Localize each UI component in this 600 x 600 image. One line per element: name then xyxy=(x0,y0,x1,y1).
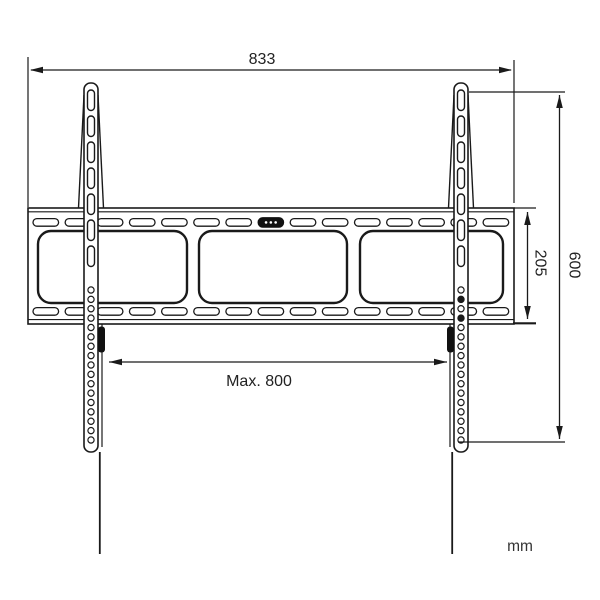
mounting-slot xyxy=(129,219,155,227)
round-hole xyxy=(88,390,94,396)
units-label-group: mm xyxy=(507,538,533,555)
locking-clip xyxy=(447,327,454,353)
mounting-slot xyxy=(290,308,316,316)
mounting-slot xyxy=(322,219,348,227)
vesa-slot xyxy=(88,142,95,163)
arrowhead-left-icon xyxy=(30,67,43,74)
vesa-slot xyxy=(88,116,95,137)
round-hole xyxy=(458,428,464,434)
round-hole xyxy=(458,334,464,340)
bracket-technical-drawing: 833 600 205 Max. 800 mm xyxy=(0,0,600,600)
round-hole xyxy=(88,353,94,359)
round-hole xyxy=(88,287,94,293)
mounting-slot xyxy=(162,308,188,316)
level-indicator-dot xyxy=(274,221,277,224)
plate-cutout xyxy=(360,231,503,303)
mounting-slot xyxy=(97,219,123,227)
vesa-slot xyxy=(458,116,465,137)
arrowhead-up-icon xyxy=(524,212,531,225)
dim-overall-height-label: 600 xyxy=(566,252,583,279)
round-hole xyxy=(458,315,464,321)
round-hole xyxy=(88,334,94,340)
arrowhead-right-icon xyxy=(434,359,447,366)
gusset-edge xyxy=(468,95,474,208)
arrowhead-down-icon xyxy=(524,306,531,319)
mounting-slot xyxy=(419,219,445,227)
round-hole xyxy=(458,399,464,405)
vesa-slot xyxy=(458,142,465,163)
arrowhead-right-icon xyxy=(499,67,512,74)
round-hole xyxy=(458,324,464,330)
mounting-slot xyxy=(387,219,413,227)
mounting-slot xyxy=(290,219,316,227)
vesa-slot xyxy=(88,90,95,111)
dim-plate-height: 205 xyxy=(513,208,549,323)
round-hole xyxy=(458,287,464,293)
mounting-slot xyxy=(355,308,381,316)
round-hole xyxy=(88,437,94,443)
mounting-slot xyxy=(483,219,509,227)
dim-plate-height-label: 205 xyxy=(532,250,549,277)
vesa-slot xyxy=(458,168,465,189)
vesa-slot xyxy=(458,194,465,215)
vesa-slot xyxy=(458,220,465,241)
wall-plate xyxy=(28,208,514,324)
mounting-slot xyxy=(226,308,252,316)
vesa-slot xyxy=(88,220,95,241)
vesa-slot xyxy=(88,194,95,215)
round-hole xyxy=(88,306,94,312)
gusset-edge xyxy=(79,95,85,208)
round-hole xyxy=(88,428,94,434)
units-label: mm xyxy=(507,538,533,555)
round-hole xyxy=(458,371,464,377)
round-hole xyxy=(88,381,94,387)
gusset-edge xyxy=(449,95,455,208)
arrowhead-up-icon xyxy=(556,95,563,108)
mounting-slot xyxy=(194,308,220,316)
round-hole xyxy=(458,362,464,368)
dim-max-mount-width-label: Max. 800 xyxy=(226,373,292,390)
dim-plate-width-label: 833 xyxy=(249,51,276,68)
mounting-slot xyxy=(483,308,509,316)
mounting-slot xyxy=(226,219,252,227)
round-hole xyxy=(88,296,94,302)
diagram-canvas: 833 600 205 Max. 800 mm xyxy=(0,0,600,600)
round-hole xyxy=(88,324,94,330)
round-hole xyxy=(88,343,94,349)
mounting-slot xyxy=(33,219,59,227)
vesa-slot xyxy=(458,90,465,111)
plate-cutout xyxy=(38,231,187,303)
plate-cutout xyxy=(199,231,347,303)
mounting-slot xyxy=(322,308,348,316)
round-hole xyxy=(88,418,94,424)
round-hole xyxy=(458,409,464,415)
level-indicator-dot xyxy=(270,221,273,224)
locking-clip xyxy=(98,327,105,353)
mounting-slot xyxy=(33,308,59,316)
round-hole xyxy=(458,353,464,359)
arrowhead-down-icon xyxy=(556,426,563,439)
round-hole xyxy=(458,296,464,302)
dim-plate-width: 833 xyxy=(28,51,514,207)
mounting-slot xyxy=(355,219,381,227)
round-hole xyxy=(88,399,94,405)
vesa-slot xyxy=(458,246,465,267)
mounting-slot xyxy=(194,219,220,227)
round-hole xyxy=(88,371,94,377)
level-indicator-dot xyxy=(265,221,268,224)
round-hole xyxy=(458,418,464,424)
mounting-slot xyxy=(387,308,413,316)
round-hole xyxy=(88,362,94,368)
round-hole xyxy=(458,390,464,396)
mounting-slot xyxy=(419,308,445,316)
round-hole xyxy=(88,409,94,415)
round-hole xyxy=(458,306,464,312)
vesa-slot xyxy=(88,168,95,189)
mounting-slot xyxy=(97,308,123,316)
round-hole xyxy=(458,343,464,349)
mounting-slot xyxy=(129,308,155,316)
round-hole xyxy=(88,315,94,321)
dim-max-mount-width: Max. 800 xyxy=(109,359,447,390)
mounting-slot xyxy=(258,308,284,316)
vesa-slot xyxy=(88,246,95,267)
arrowhead-left-icon xyxy=(109,359,122,366)
round-hole xyxy=(458,381,464,387)
mounting-slot xyxy=(162,219,188,227)
gusset-edge xyxy=(98,95,104,208)
